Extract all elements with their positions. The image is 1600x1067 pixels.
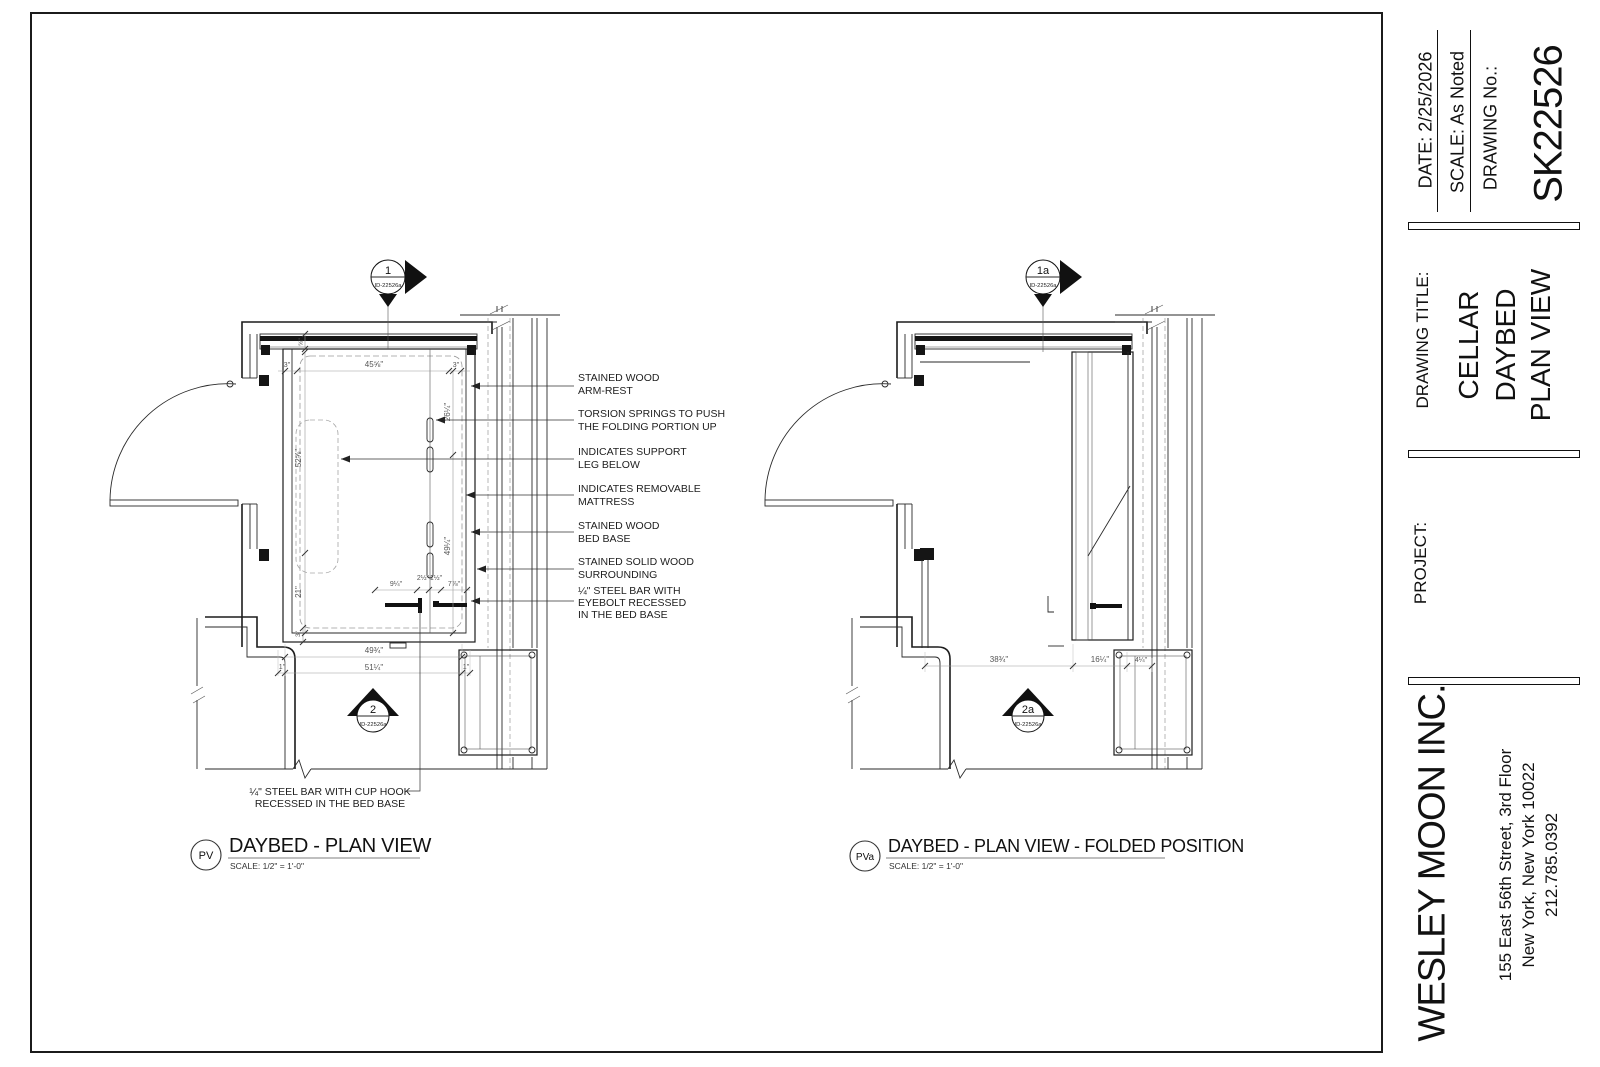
left-plan-title: PV DAYBED - PLAN VIEW SCALE: 1/2" = 1'-0… bbox=[191, 835, 431, 871]
titleblock-divider-2 bbox=[1408, 450, 1580, 458]
dim-bar-b: 2½" bbox=[417, 574, 430, 582]
dim-bar-a: 9¼" bbox=[390, 581, 403, 588]
note-line-2: RECESSED IN THE BED BASE bbox=[255, 798, 405, 810]
dim-edge-left: 1" bbox=[279, 664, 286, 671]
dim-bar-d: 7⅞" bbox=[448, 581, 461, 588]
marker-2a-id: ID-22526a bbox=[1014, 722, 1042, 728]
dim-folded-depth: 16¼" bbox=[1091, 655, 1110, 664]
cup-hook-note: ¼" STEEL BAR WITH CUP HOOK RECESSED IN T… bbox=[249, 609, 420, 810]
dim-upper-left: 52⅝" bbox=[294, 449, 303, 468]
dim-reveal: ⅝" bbox=[298, 337, 305, 345]
support-leg-outline bbox=[296, 420, 338, 573]
right-plan-scale: SCALE: 1/2" = 1'-0" bbox=[889, 861, 963, 871]
right-plan-title-text: DAYBED - PLAN VIEW - FOLDED POSITION bbox=[888, 836, 1244, 856]
annotation-mattress: INDICATES REMOVABLE bbox=[578, 483, 701, 495]
daybed-frame bbox=[283, 349, 475, 648]
section-marker-1: 1 ID-22526a bbox=[371, 260, 427, 349]
titleblock-divider-1 bbox=[1408, 222, 1580, 230]
svg-text:IN THE BED BASE: IN THE BED BASE bbox=[578, 609, 668, 621]
titleblock-rule-1 bbox=[1437, 30, 1438, 212]
dim-lower-left: 21" bbox=[294, 586, 303, 598]
firm-address-line-2: New York, New York 10022 bbox=[1519, 762, 1539, 967]
dim-top-width: 45⅝" bbox=[365, 360, 384, 369]
svg-text:SURROUNDING: SURROUNDING bbox=[578, 569, 657, 581]
steel-bar-cup-hook bbox=[385, 603, 421, 607]
marker-1-number: 1 bbox=[385, 265, 391, 277]
date-field: DATE: 2/25/2026 bbox=[1416, 52, 1437, 189]
svg-text:THE FOLDING PORTION UP: THE FOLDING PORTION UP bbox=[578, 421, 717, 433]
note-line-1: ¼" STEEL BAR WITH CUP HOOK bbox=[249, 786, 410, 798]
firm-address-line-1: 155 East 56th Street, 3rd Floor bbox=[1496, 749, 1516, 981]
drawing-no-label: DRAWING No.: bbox=[1481, 66, 1502, 190]
svg-text:MATTRESS: MATTRESS bbox=[578, 496, 634, 508]
drawing-title-line-2: DAYBED bbox=[1490, 288, 1522, 401]
steel-bar-folded bbox=[1096, 604, 1122, 608]
room-shell-right bbox=[765, 305, 1215, 778]
marker-1a-number: 1a bbox=[1037, 265, 1050, 277]
drawing-number: SK22526 bbox=[1527, 45, 1572, 203]
room-shell-left bbox=[110, 305, 560, 778]
scale-field: SCALE: As Noted bbox=[1448, 51, 1469, 193]
marker-2-id: ID-22526a bbox=[359, 722, 387, 728]
plan-daybed-open: 1 ID-22526a 2 ID-22526a bbox=[110, 260, 725, 871]
firm-name: WESLEY MOON INC. bbox=[1412, 684, 1455, 1041]
annotation-surrounding: STAINED SOLID WOOD bbox=[578, 556, 694, 568]
svg-text:LEG BELOW: LEG BELOW bbox=[578, 459, 640, 471]
left-plan-tag: PV bbox=[199, 850, 214, 862]
marker-2-number: 2 bbox=[370, 704, 376, 716]
dim-unit-depth: 4¼" bbox=[1135, 657, 1148, 664]
folded-mattress-hatch bbox=[1076, 352, 1088, 640]
marker-1a-id: ID-22526a bbox=[1029, 283, 1057, 289]
dim-side-right: 3" bbox=[453, 362, 460, 369]
annotation-support-leg: INDICATES SUPPORT bbox=[578, 446, 687, 458]
eyebolt-folded bbox=[1090, 603, 1096, 609]
firm-phone: 212.785.0392 bbox=[1542, 813, 1562, 917]
right-plan-tag: PVa bbox=[856, 852, 875, 863]
dim-edge-right: 1" bbox=[463, 664, 470, 671]
dim-clear-width: 38¾" bbox=[990, 655, 1009, 664]
drawing-sheet: 1 ID-22526a 2 ID-22526a bbox=[0, 0, 1600, 1067]
svg-text:ARM-REST: ARM-REST bbox=[578, 385, 633, 397]
left-plan-scale: SCALE: 1/2" = 1'-0" bbox=[230, 861, 304, 871]
plans-svg: 1 ID-22526a 2 ID-22526a bbox=[0, 0, 1380, 1056]
dim-inner-width: 49¾" bbox=[365, 646, 384, 655]
annotation-bed-base: STAINED WOOD bbox=[578, 520, 660, 532]
annotation-armrest: STAINED WOOD bbox=[578, 372, 660, 384]
dim-upper-right: 26¼" bbox=[443, 403, 452, 422]
fold-diagonal bbox=[1088, 486, 1130, 556]
drawing-title-line-3: PLAN VIEW bbox=[1525, 269, 1557, 421]
dim-rail: 3" bbox=[295, 630, 302, 637]
titleblock-rule-2 bbox=[1470, 30, 1471, 212]
dim-lower-right: 49¼" bbox=[443, 537, 452, 556]
folded-daybed bbox=[920, 352, 1133, 648]
annotation-eyebolt-bar: ¼" STEEL BAR WITH bbox=[578, 585, 681, 597]
drawing-title-label: DRAWING TITLE: bbox=[1413, 272, 1433, 409]
dim-bar-c: 1½" bbox=[430, 574, 443, 582]
annotation-torsion-springs: TORSION SPRINGS TO PUSH bbox=[578, 408, 725, 420]
eyebolt bbox=[433, 601, 439, 607]
svg-text:BED BASE: BED BASE bbox=[578, 533, 631, 545]
project-label: PROJECT: bbox=[1411, 522, 1431, 604]
drawing-title-line-1: CELLAR bbox=[1453, 291, 1485, 400]
right-plan-title: PVa DAYBED - PLAN VIEW - FOLDED POSITION… bbox=[850, 836, 1244, 871]
left-plan-title-text: DAYBED - PLAN VIEW bbox=[229, 835, 431, 857]
svg-text:EYEBOLT RECESSED: EYEBOLT RECESSED bbox=[578, 597, 687, 609]
dim-side-left: 3" bbox=[284, 362, 291, 369]
removable-mattress-outline bbox=[300, 356, 462, 628]
dim-total-width: 51¼" bbox=[365, 663, 384, 672]
plan-daybed-folded: 1a ID-22526a 2a ID-22526a 38¾" bbox=[765, 260, 1244, 871]
left-plan-dimensions: 3" 45⅝" 3" ⅝" 52⅝" 21" 26¼" 49¼" 9¼" 2½"… bbox=[275, 331, 473, 676]
section-marker-2a: 2a ID-22526a bbox=[1002, 688, 1054, 732]
marker-2a-number: 2a bbox=[1022, 704, 1035, 716]
marker-1-id: ID-22526a bbox=[374, 283, 402, 289]
section-marker-2: 2 ID-22526a bbox=[347, 688, 399, 732]
